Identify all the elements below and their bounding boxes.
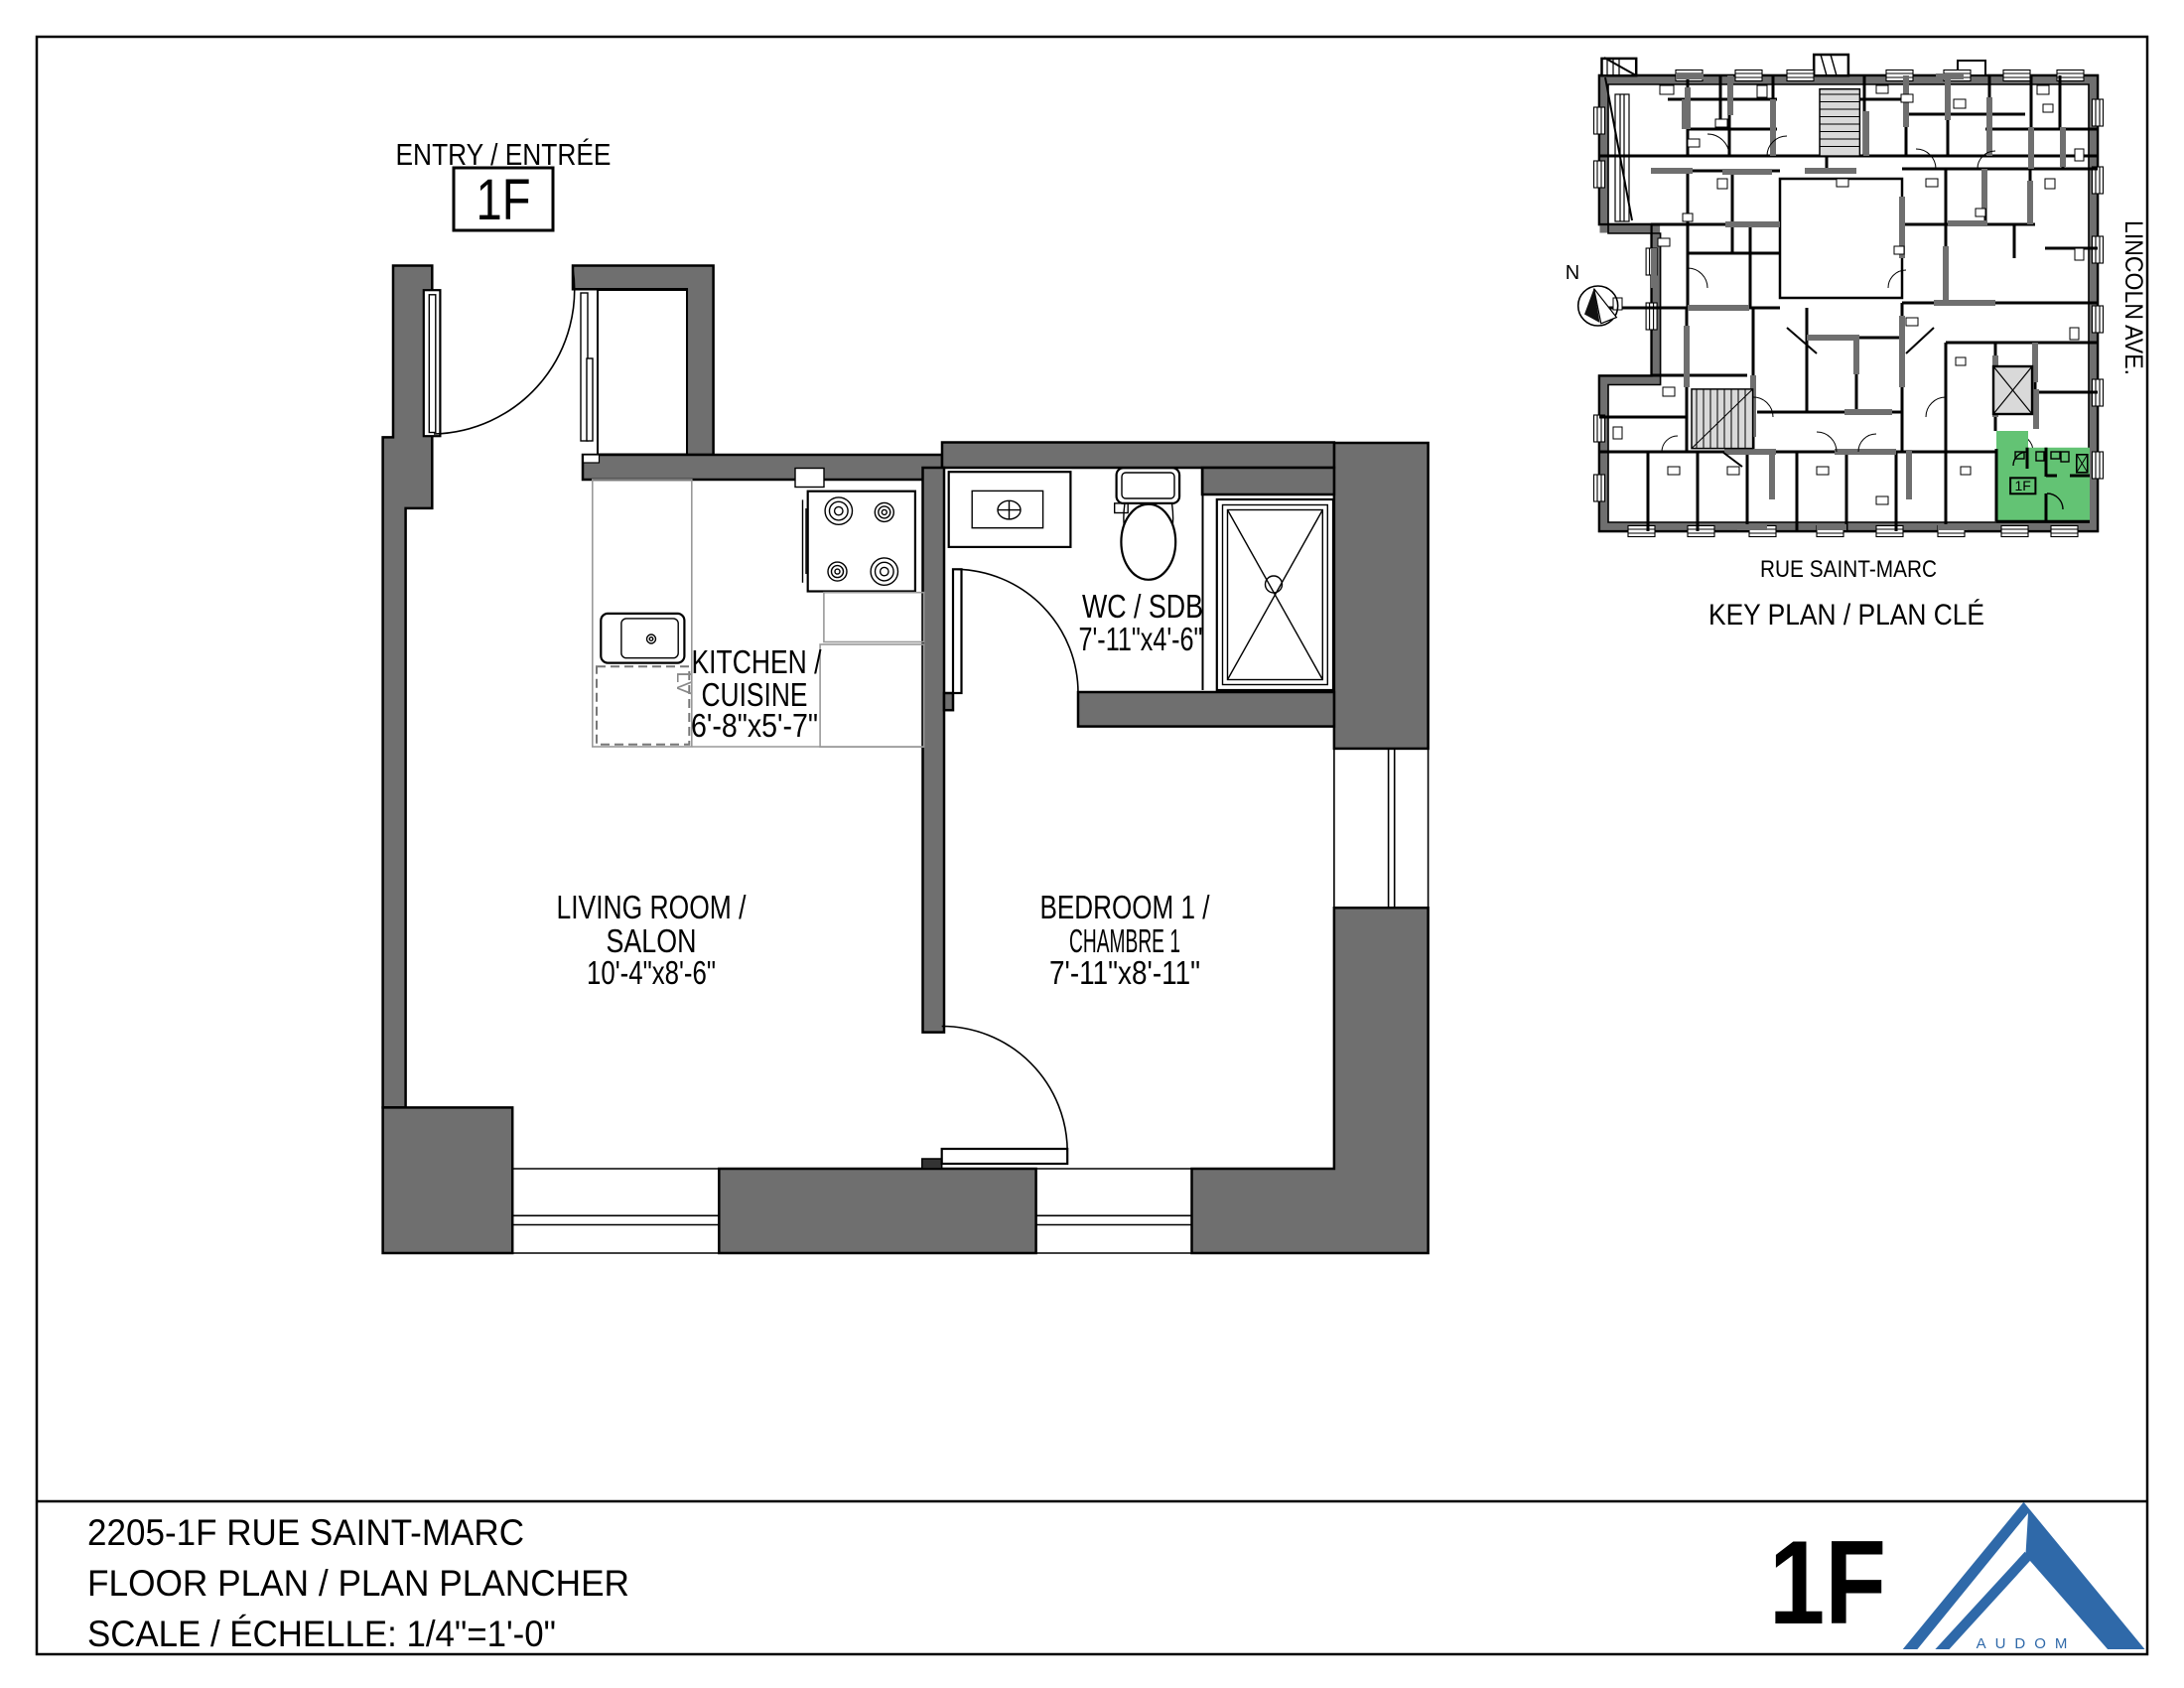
svg-text:7'-11"x8'-11": 7'-11"x8'-11" bbox=[1049, 954, 1200, 991]
svg-text:AUDOM: AUDOM bbox=[1977, 1635, 2077, 1652]
svg-text:BEDROOM 1 /: BEDROOM 1 / bbox=[1040, 889, 1211, 925]
svg-text:FLOOR PLAN / PLAN PLANCHER: FLOOR PLAN / PLAN PLANCHER bbox=[87, 1563, 629, 1604]
svg-text:1F: 1F bbox=[477, 168, 531, 232]
svg-text:KEY PLAN / PLAN CLÉ: KEY PLAN / PLAN CLÉ bbox=[1708, 599, 1984, 632]
svg-text:2205-1F RUE SAINT-MARC: 2205-1F RUE SAINT-MARC bbox=[87, 1512, 524, 1553]
svg-text:LINCOLN AVE.: LINCOLN AVE. bbox=[2119, 220, 2147, 375]
svg-text:7'-11"x4'-6": 7'-11"x4'-6" bbox=[1079, 621, 1203, 657]
svg-text:N: N bbox=[1566, 262, 1579, 284]
svg-text:1F: 1F bbox=[2015, 478, 2031, 493]
svg-text:KITCHEN /: KITCHEN / bbox=[692, 643, 823, 680]
svg-text:LIVING ROOM /: LIVING ROOM / bbox=[557, 889, 748, 925]
svg-text:RUE SAINT-MARC: RUE SAINT-MARC bbox=[1760, 556, 1937, 583]
svg-text:6'-8"x5'-7": 6'-8"x5'-7" bbox=[691, 707, 818, 744]
svg-text:10'-4"x8'-6": 10'-4"x8'-6" bbox=[587, 954, 716, 991]
svg-text:1F: 1F bbox=[1769, 1516, 1886, 1649]
svg-text:SCALE / ÉCHELLE: 1/4"=1'-0": SCALE / ÉCHELLE: 1/4"=1'-0" bbox=[87, 1614, 556, 1654]
svg-text:WC / SDB: WC / SDB bbox=[1082, 588, 1203, 625]
